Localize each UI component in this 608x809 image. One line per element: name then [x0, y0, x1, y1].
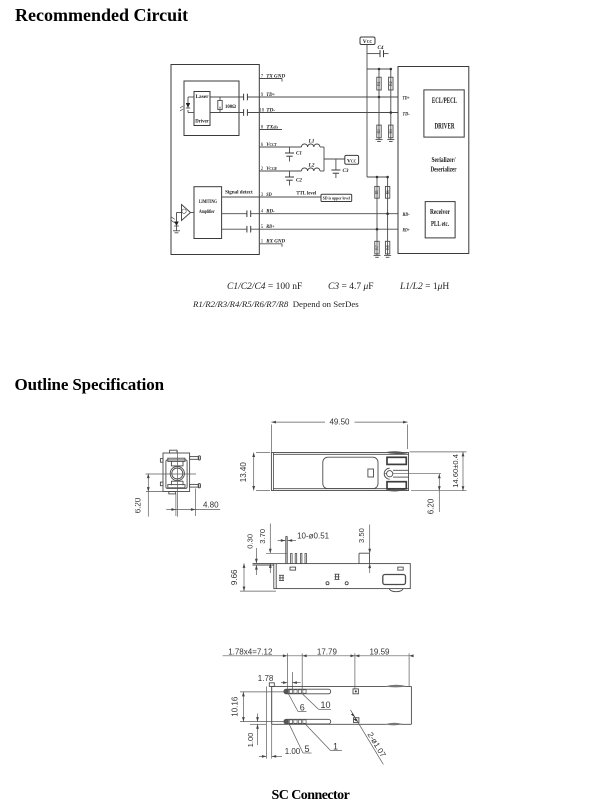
svg-text:SD is upper level: SD is upper level: [323, 197, 350, 201]
svg-text:49.50: 49.50: [329, 418, 350, 427]
svg-text:RD+: RD+: [402, 228, 410, 234]
svg-text:Receiver: Receiver: [430, 208, 450, 216]
svg-text:RD-: RD-: [265, 209, 274, 215]
svg-text:C3: C3: [343, 168, 349, 174]
svg-text:TD-: TD-: [266, 107, 275, 113]
svg-text:1.78: 1.78: [258, 674, 274, 683]
svg-text:9.66: 9.66: [230, 569, 239, 585]
svg-text:3.70: 3.70: [258, 529, 267, 544]
svg-text:1.00: 1.00: [285, 747, 301, 756]
svg-text:TTL level: TTL level: [296, 191, 316, 197]
svg-text:13.40: 13.40: [239, 462, 248, 483]
svg-text:3.50: 3.50: [357, 528, 366, 543]
svg-text:10.16: 10.16: [231, 696, 240, 717]
svg-text:17.79: 17.79: [317, 647, 338, 656]
svg-text:RD+: RD+: [265, 224, 274, 230]
svg-text:TX GND: TX GND: [266, 73, 285, 79]
svg-text:10: 10: [259, 108, 264, 113]
svg-text:10-ø0.51: 10-ø0.51: [297, 531, 330, 540]
svg-text:0.30: 0.30: [245, 534, 254, 549]
svg-text:VCC: VCC: [347, 159, 357, 165]
svg-text:1.78x4=7.12: 1.78x4=7.12: [228, 647, 273, 656]
svg-text:R4: R4: [389, 129, 393, 133]
svg-text:4.80: 4.80: [203, 501, 219, 510]
svg-text:Amplifier: Amplifier: [199, 210, 215, 215]
svg-text:TD+: TD+: [403, 95, 410, 101]
svg-text:5: 5: [305, 744, 310, 754]
svg-text:1: 1: [333, 741, 338, 751]
svg-text:SD: SD: [266, 192, 272, 198]
svg-text:Laser: Laser: [196, 95, 210, 100]
svg-text:2-ø1.07: 2-ø1.07: [366, 731, 388, 760]
svg-text:R: R: [218, 106, 222, 109]
svg-text:6.20: 6.20: [427, 498, 436, 514]
svg-text:R2: R2: [389, 81, 393, 85]
svg-text:L1: L1: [308, 139, 315, 145]
svg-text:R1: R1: [377, 81, 381, 85]
svg-text:1.00: 1.00: [246, 733, 255, 748]
svg-text:ECL/PECL: ECL/PECL: [432, 96, 457, 105]
svg-text:Deserializer: Deserializer: [431, 166, 457, 174]
svg-text:RD-: RD-: [402, 212, 410, 218]
svg-text:TD+: TD+: [266, 92, 275, 98]
svg-text:R6: R6: [386, 190, 390, 194]
svg-text:Signal detect: Signal detect: [225, 190, 253, 195]
svg-text:R3: R3: [377, 129, 381, 133]
svg-text:RX GND: RX GND: [265, 239, 285, 245]
svg-text:R7: R7: [375, 245, 379, 249]
svg-text:LIMITING: LIMITING: [199, 200, 217, 205]
svg-text:TD-: TD-: [403, 111, 410, 117]
svg-text:C4: C4: [378, 45, 384, 51]
svg-text:100Ω: 100Ω: [225, 105, 236, 110]
svg-text:Driver: Driver: [195, 120, 209, 125]
svg-text:C2: C2: [296, 178, 302, 184]
svg-text:Serializer/: Serializer/: [432, 156, 457, 164]
svg-text:10: 10: [321, 700, 331, 710]
svg-text:19.59: 19.59: [369, 647, 390, 656]
svg-text:C1: C1: [296, 151, 302, 157]
svg-text:L2: L2: [308, 163, 315, 169]
svg-text:DRIVER: DRIVER: [435, 121, 455, 130]
svg-text:R8: R8: [386, 245, 390, 249]
svg-text:14.60±0.4: 14.60±0.4: [451, 454, 460, 488]
svg-text:PLL etc.: PLL etc.: [431, 220, 449, 228]
svg-text:R5: R5: [375, 190, 379, 194]
svg-text:VCC: VCC: [363, 39, 373, 45]
svg-text:6: 6: [300, 702, 305, 712]
svg-text:6.20: 6.20: [135, 497, 142, 513]
